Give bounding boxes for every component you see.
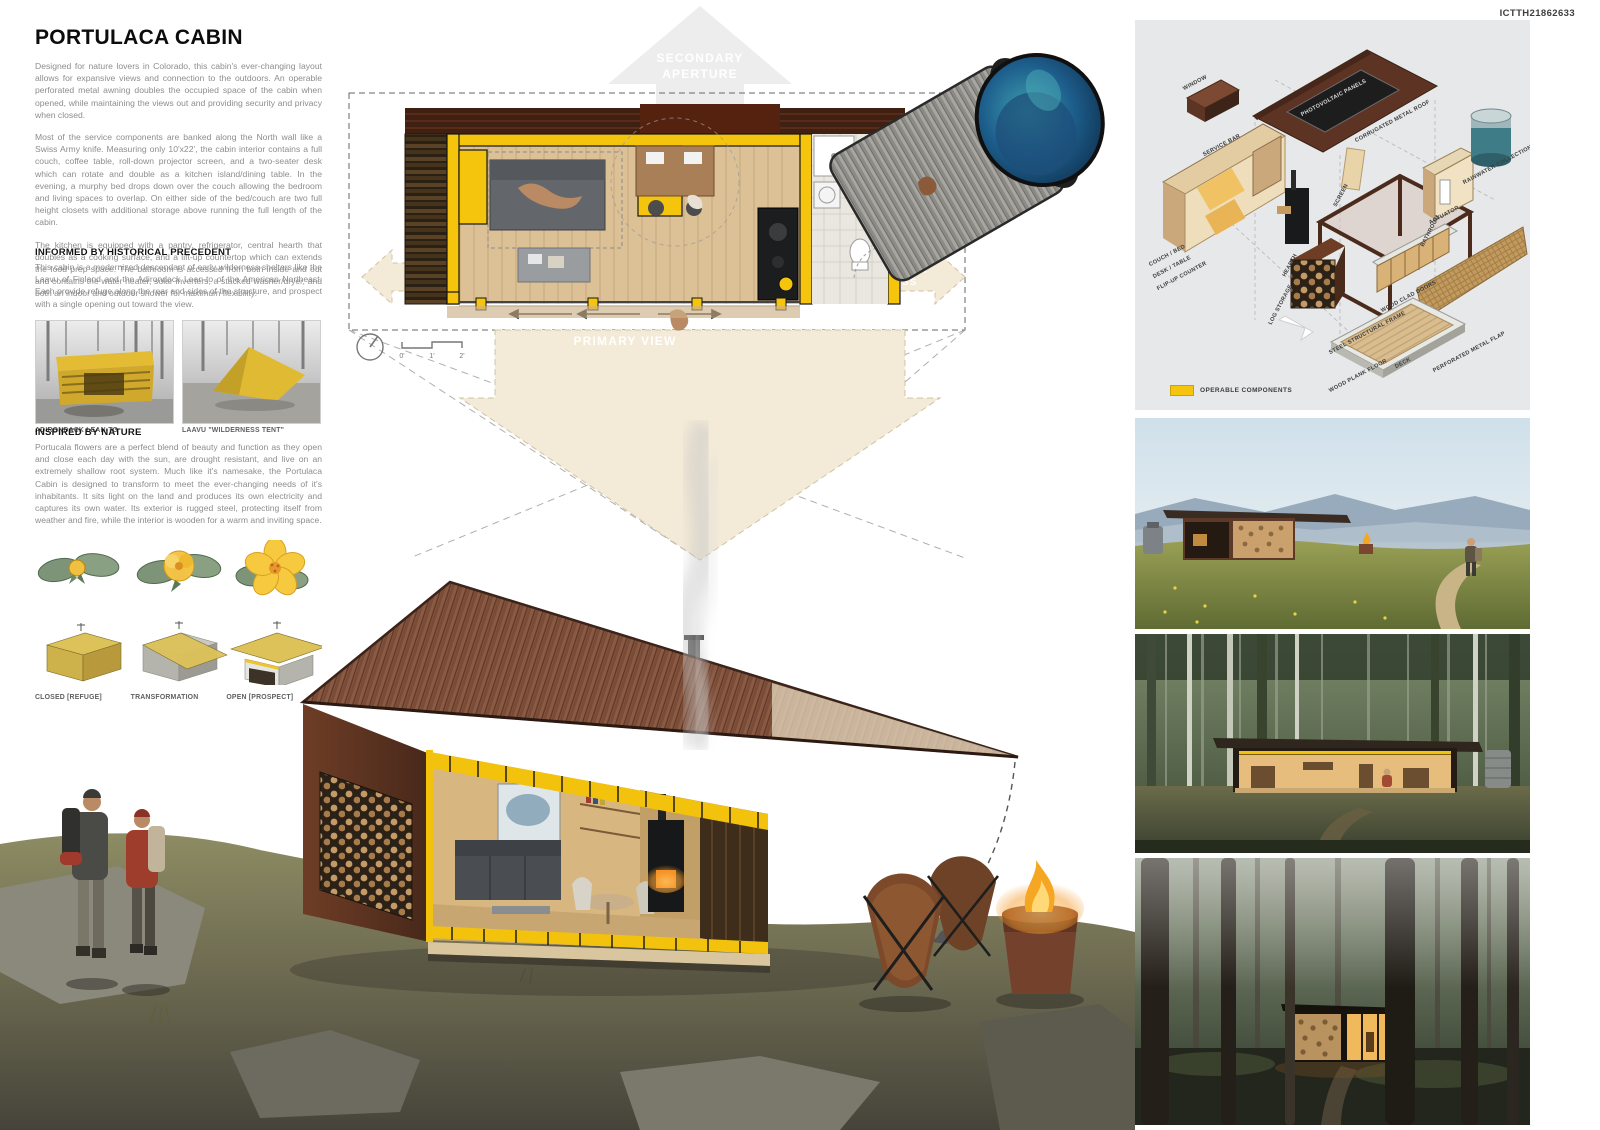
photo-cabin: [1213, 738, 1483, 793]
page-title: PORTULACA CABIN: [35, 26, 322, 50]
hero-render: [0, 552, 1135, 1130]
legend-swatch: [1170, 385, 1194, 396]
precedent-section: INFORMED BY HISTORICAL PRECEDENT This ca…: [35, 247, 322, 434]
presentation-board: ICTTH21862633 PORTULACA CABIN Designed f…: [0, 0, 1600, 1130]
precedent-photo-laavu: LAAVU "WILDERNESS TENT": [182, 320, 321, 434]
svg-text:0': 0': [399, 353, 404, 360]
render-photo-forest-day: [1135, 634, 1530, 853]
floor-plan-graphic: SECONDARY APERTURE PRIMARY VIEW PRIMARY: [340, 0, 1120, 570]
intro-paragraph: Designed for nature lovers in Colorado, …: [35, 60, 322, 121]
render-photo-hilltop: [1135, 418, 1530, 629]
precedent-body: This cabin is a modernized descendant of…: [35, 261, 322, 310]
intro-paragraph: Most of the service components are banke…: [35, 131, 322, 229]
precedent-photo-leanto: ADIRONDACK LEAN-TO: [35, 320, 174, 434]
nature-body: Portucala flowers are a perfect blend of…: [35, 441, 322, 526]
hero-render-graphic: [0, 552, 1135, 1130]
board-id: ICTTH21862633: [1500, 8, 1575, 19]
north-arrow: [357, 334, 383, 360]
primary-view-arrow: PRIMARY VIEW: [460, 330, 940, 560]
floor-plan: SECONDARY APERTURE PRIMARY VIEW PRIMARY: [340, 0, 1120, 570]
svg-text:2': 2': [459, 353, 464, 360]
laavu-photo-graphic: [182, 320, 321, 424]
svg-text:APERTURE: APERTURE: [662, 67, 738, 81]
exploded-axon-panel: WINDOW SERVICE BAR PHOTOVOLTAIC PANELS C…: [1135, 20, 1530, 410]
leanto-photo-graphic: [35, 320, 174, 424]
nature-heading: INSPIRED BY NATURE: [35, 427, 322, 438]
scale-bar: [402, 342, 462, 348]
operable-components-legend: OPERABLE COMPONENTS: [1170, 385, 1292, 396]
legend-label: OPERABLE COMPONENTS: [1200, 387, 1292, 394]
render-photo-forest-night: [1135, 858, 1530, 1125]
cabin-interior: [426, 750, 768, 954]
precedent-photos: ADIRONDACK LEAN-TO LAAVU "WILDERNESS TEN…: [35, 320, 322, 434]
precedent-heading: INFORMED BY HISTORICAL PRECEDENT: [35, 247, 322, 258]
svg-text:1': 1': [429, 353, 434, 360]
svg-text:SECONDARY: SECONDARY: [656, 51, 743, 65]
cabin-plan: [405, 104, 905, 331]
svg-text:PRIMARY VIEW: PRIMARY VIEW: [573, 334, 676, 348]
